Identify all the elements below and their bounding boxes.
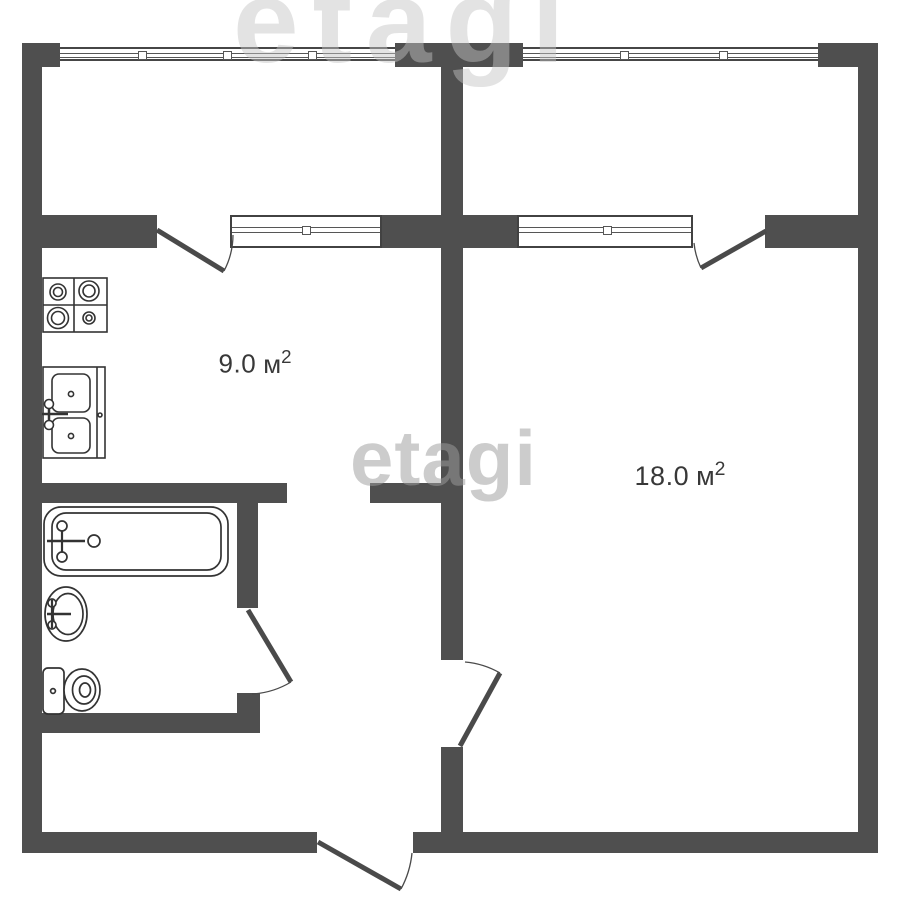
living-room-balcony-door [694, 231, 766, 268]
floor-plan: 9.0м2 18.0м2 etagi etagi [0, 0, 900, 900]
toilet [43, 668, 100, 714]
living-room-area-value: 18.0 [635, 461, 690, 491]
living-room-area-exponent: 2 [715, 458, 726, 480]
bathtub [44, 507, 228, 576]
fixtures-and-doors-layer [0, 0, 900, 900]
kitchen-area-exponent: 2 [281, 346, 291, 367]
kitchen-balcony-door [157, 230, 233, 271]
stove [43, 278, 107, 332]
living-room-area-label: 18.0м2 [608, 458, 752, 492]
double-sink [42, 367, 105, 458]
living-room-door [460, 662, 500, 746]
kitchen-area-unit: м [263, 349, 281, 379]
kitchen-area-label: 9.0м2 [193, 346, 317, 380]
bathroom-door [248, 610, 291, 694]
wash-basin [45, 587, 87, 641]
living-room-area-unit: м [696, 461, 715, 491]
entry-door [318, 842, 412, 889]
kitchen-area-value: 9.0 [219, 349, 257, 379]
